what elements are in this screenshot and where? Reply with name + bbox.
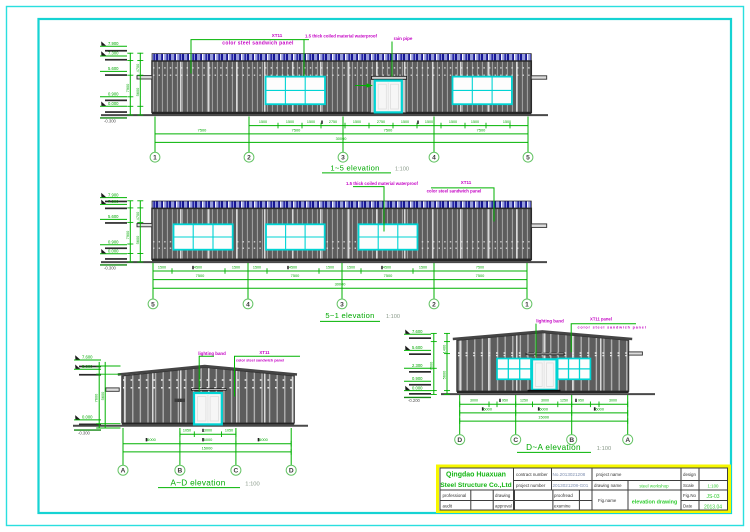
svg-text:1400: 1400 [442, 344, 447, 353]
svg-text:rain pipe: rain pipe [394, 36, 413, 41]
svg-text:4700: 4700 [135, 211, 140, 220]
svg-text:3000: 3000 [204, 429, 212, 433]
svg-text:4500: 4500 [194, 265, 202, 269]
svg-text:1:100: 1:100 [245, 481, 260, 487]
svg-text:950: 950 [578, 399, 584, 403]
svg-text:0.000: 0.000 [108, 249, 119, 254]
svg-text:lighting band: lighting band [536, 318, 564, 323]
svg-text:1:100: 1:100 [708, 484, 720, 489]
svg-text:7.600: 7.600 [412, 329, 423, 334]
svg-text:1: 1 [525, 301, 529, 308]
svg-text:A~D elevation: A~D elevation [170, 478, 225, 487]
svg-text:D~A elevation: D~A elevation [526, 443, 581, 452]
svg-text:7.300: 7.300 [108, 199, 119, 204]
svg-text:7.600: 7.600 [82, 355, 93, 360]
svg-text:4: 4 [432, 155, 436, 162]
svg-text:lighting band: lighting band [198, 351, 226, 356]
svg-text:6000: 6000 [539, 406, 548, 411]
svg-text:4: 4 [246, 301, 250, 308]
svg-text:1500: 1500 [326, 265, 334, 269]
svg-text:1.5 thick coiled material wate: 1.5 thick coiled material waterproof [305, 34, 377, 39]
svg-text:Scale: Scale [683, 483, 695, 488]
svg-text:1500: 1500 [259, 120, 267, 124]
svg-text:Fig.name: Fig.name [598, 498, 617, 503]
svg-text:1250: 1250 [520, 399, 528, 403]
svg-text:5600: 5600 [100, 391, 105, 400]
svg-text:2013.04: 2013.04 [704, 505, 722, 511]
svg-text:5: 5 [526, 155, 530, 162]
svg-text:1500: 1500 [286, 120, 294, 124]
svg-text:1500: 1500 [307, 120, 315, 124]
svg-text:1:100: 1:100 [597, 446, 612, 452]
svg-text:3000: 3000 [609, 399, 617, 403]
svg-text:C: C [234, 468, 239, 475]
svg-text:5600: 5600 [442, 370, 447, 379]
svg-text:D: D [457, 437, 462, 444]
svg-text:15000: 15000 [202, 445, 214, 450]
svg-text:-0.300: -0.300 [78, 431, 91, 436]
svg-text:1:100: 1:100 [395, 166, 409, 172]
svg-text:color steel sandwich panel: color steel sandwich panel [236, 358, 284, 362]
svg-text:contract number: contract number [516, 472, 548, 477]
svg-text:0.000: 0.000 [108, 101, 119, 106]
svg-text:5.600: 5.600 [108, 214, 119, 219]
svg-text:approval: approval [495, 504, 512, 509]
svg-text:4700: 4700 [135, 63, 140, 72]
svg-text:1500: 1500 [471, 120, 479, 124]
svg-text:1500: 1500 [158, 265, 166, 269]
svg-text:1~5 elevation: 1~5 elevation [330, 163, 379, 172]
svg-text:7.900: 7.900 [108, 192, 119, 197]
svg-text:D: D [289, 468, 294, 475]
svg-text:drawing name: drawing name [594, 483, 622, 488]
svg-text:2: 2 [247, 155, 251, 162]
svg-text:4500: 4500 [383, 265, 391, 269]
svg-text:6000: 6000 [483, 406, 492, 411]
svg-text:0.900: 0.900 [108, 92, 119, 97]
svg-text:2750: 2750 [329, 120, 337, 124]
svg-text:5600: 5600 [135, 235, 140, 244]
svg-text:5.600: 5.600 [82, 364, 93, 369]
svg-text:7500: 7500 [291, 273, 300, 278]
svg-text:-0.200: -0.200 [408, 398, 421, 403]
svg-text:7500: 7500 [384, 273, 393, 278]
svg-text:7500: 7500 [476, 265, 484, 269]
svg-text:Fig.No: Fig.No [683, 493, 696, 498]
svg-text:5.600: 5.600 [108, 66, 119, 71]
svg-text:950: 950 [502, 399, 508, 403]
svg-text:2013021208-G01: 2013021208-G01 [553, 483, 589, 488]
svg-text:project number: project number [516, 483, 546, 488]
svg-text:A: A [121, 468, 126, 475]
svg-text:7500: 7500 [384, 127, 393, 132]
svg-text:0.000: 0.000 [82, 415, 93, 420]
svg-text:XT11: XT11 [259, 350, 270, 355]
svg-text:1.5 thick coiled material wate: 1.5 thick coiled material waterproof [346, 181, 418, 186]
svg-text:-0.300: -0.300 [104, 119, 117, 124]
svg-text:1500: 1500 [449, 120, 457, 124]
svg-text:7900: 7900 [125, 83, 130, 92]
svg-text:Date: Date [683, 504, 693, 509]
svg-text:1500: 1500 [401, 120, 409, 124]
svg-text:1: 1 [153, 155, 157, 162]
svg-text:design: design [683, 472, 696, 477]
svg-text:7600: 7600 [428, 361, 433, 370]
svg-text:proofread: proofread [554, 493, 573, 498]
svg-text:3: 3 [340, 301, 344, 308]
svg-text:No.2013021208: No.2013021208 [553, 472, 586, 477]
svg-text:0.000: 0.000 [412, 385, 423, 390]
svg-text:1500: 1500 [347, 265, 355, 269]
svg-text:7600: 7600 [94, 393, 99, 402]
svg-text:7500: 7500 [292, 127, 301, 132]
svg-text:6000: 6000 [147, 437, 156, 442]
svg-text:XT11: XT11 [461, 180, 472, 185]
svg-text:7500: 7500 [198, 127, 207, 132]
svg-text:7900: 7900 [125, 230, 130, 239]
svg-text:1500: 1500 [353, 120, 361, 124]
svg-text:2: 2 [432, 301, 436, 308]
svg-text:XT11: XT11 [272, 33, 283, 38]
svg-text:Steel Structure Co.,Ltd: Steel Structure Co.,Ltd [440, 482, 511, 489]
svg-text:5: 5 [151, 301, 155, 308]
svg-text:3000: 3000 [541, 399, 549, 403]
svg-text:1:100: 1:100 [386, 314, 400, 320]
svg-text:elevation drawing: elevation drawing [632, 500, 678, 506]
svg-text:30000: 30000 [335, 282, 347, 287]
svg-text:2.300: 2.300 [412, 363, 423, 368]
svg-text:examine: examine [554, 504, 571, 509]
svg-text:7500: 7500 [476, 273, 485, 278]
svg-text:5600: 5600 [135, 87, 140, 96]
svg-text:Qingdao Huaxuan: Qingdao Huaxuan [446, 472, 506, 479]
svg-text:5.600: 5.600 [412, 345, 423, 350]
svg-text:1500: 1500 [503, 120, 511, 124]
svg-text:4500: 4500 [289, 265, 297, 269]
svg-text:7.300: 7.300 [108, 51, 119, 56]
svg-text:color steel sandwich panel: color steel sandwich panel [427, 189, 482, 194]
svg-text:B: B [178, 468, 183, 475]
svg-text:steel workshop: steel workshop [639, 484, 669, 489]
svg-text:color steel sandwich panel: color steel sandwich panel [222, 41, 294, 47]
svg-text:2750: 2750 [377, 120, 385, 124]
svg-text:A: A [625, 437, 630, 444]
svg-text:color steel sandwich panel: color steel sandwich panel [577, 325, 646, 329]
svg-text:30000: 30000 [336, 136, 348, 141]
svg-text:C: C [513, 437, 518, 444]
svg-text:audit: audit [443, 504, 453, 509]
svg-text:5~1 elevation: 5~1 elevation [325, 311, 374, 320]
svg-text:XT11 panel: XT11 panel [590, 317, 612, 322]
svg-text:3000: 3000 [470, 399, 478, 403]
svg-text:1050: 1050 [225, 429, 233, 433]
svg-text:6000: 6000 [595, 406, 604, 411]
svg-text:project name: project name [596, 472, 622, 477]
svg-text:0.900: 0.900 [108, 240, 119, 245]
svg-text:1050: 1050 [183, 429, 191, 433]
svg-text:1500: 1500 [232, 265, 240, 269]
svg-text:3: 3 [341, 155, 345, 162]
svg-text:1250: 1250 [560, 399, 568, 403]
svg-text:6000: 6000 [259, 437, 268, 442]
svg-text:professional: professional [443, 493, 467, 498]
svg-text:7.900: 7.900 [108, 41, 119, 46]
svg-text:7500: 7500 [196, 273, 205, 278]
svg-text:6000: 6000 [204, 437, 213, 442]
svg-text:15000: 15000 [538, 415, 550, 420]
svg-text:1500: 1500 [419, 265, 427, 269]
svg-text:0.900: 0.900 [412, 376, 423, 381]
svg-text:1500: 1500 [253, 265, 261, 269]
svg-text:-0.300: -0.300 [104, 266, 117, 271]
svg-text:1500: 1500 [425, 120, 433, 124]
svg-text:7500: 7500 [477, 127, 486, 132]
svg-text:JS-03: JS-03 [706, 494, 719, 500]
svg-text:drawing: drawing [495, 493, 511, 498]
